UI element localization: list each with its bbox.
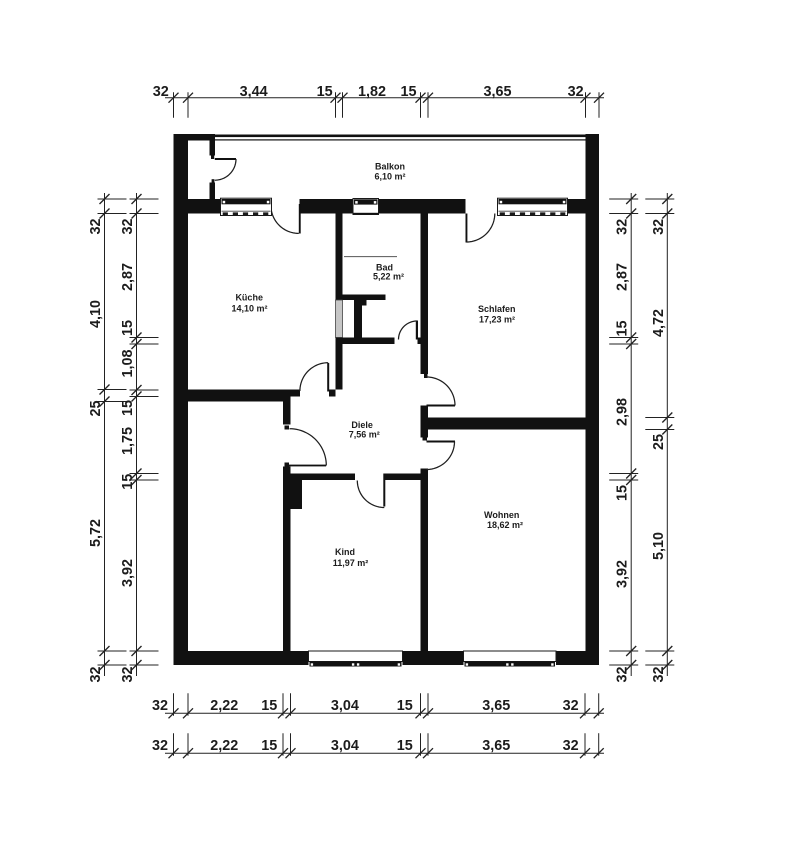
svg-text:4,10: 4,10: [88, 300, 104, 328]
svg-text:18,62 m²: 18,62 m²: [487, 520, 523, 530]
svg-text:32: 32: [615, 666, 631, 682]
svg-text:Wohnen: Wohnen: [484, 510, 519, 520]
svg-text:15: 15: [120, 474, 136, 490]
svg-text:15: 15: [317, 84, 333, 100]
svg-text:15: 15: [615, 320, 631, 336]
svg-text:2,87: 2,87: [120, 263, 136, 291]
svg-text:2,98: 2,98: [615, 398, 631, 426]
svg-text:1,82: 1,82: [358, 84, 386, 100]
svg-text:17,23 m²: 17,23 m²: [479, 314, 515, 324]
svg-text:32: 32: [88, 218, 104, 234]
svg-text:32: 32: [568, 84, 584, 100]
svg-text:32: 32: [615, 219, 631, 235]
svg-text:15: 15: [261, 738, 277, 754]
svg-text:3,92: 3,92: [120, 559, 136, 587]
svg-text:3,44: 3,44: [240, 84, 268, 100]
svg-text:14,10 m²: 14,10 m²: [231, 303, 267, 313]
svg-text:32: 32: [152, 738, 168, 754]
svg-text:Schlafen: Schlafen: [478, 304, 516, 314]
svg-text:Balkon: Balkon: [375, 162, 405, 172]
svg-text:15: 15: [397, 698, 413, 714]
svg-text:32: 32: [152, 698, 168, 714]
svg-text:3,04: 3,04: [331, 738, 359, 754]
svg-text:32: 32: [120, 666, 136, 682]
svg-text:15: 15: [400, 84, 416, 100]
svg-text:15: 15: [397, 738, 413, 754]
svg-text:Küche: Küche: [235, 293, 263, 303]
svg-text:5,22 m²: 5,22 m²: [373, 272, 404, 282]
svg-text:15: 15: [261, 698, 277, 714]
svg-text:3,04: 3,04: [331, 698, 359, 714]
svg-text:32: 32: [651, 666, 667, 682]
svg-text:6,10 m²: 6,10 m²: [374, 171, 405, 181]
svg-text:32: 32: [153, 84, 169, 100]
svg-text:Diele: Diele: [351, 420, 373, 430]
svg-text:Kind: Kind: [335, 547, 355, 557]
svg-text:7,56 m²: 7,56 m²: [349, 430, 380, 440]
svg-text:5,10: 5,10: [651, 532, 667, 560]
svg-text:4,72: 4,72: [651, 309, 667, 337]
svg-text:1,08: 1,08: [120, 349, 136, 377]
svg-text:32: 32: [88, 666, 104, 682]
svg-text:15: 15: [120, 320, 136, 336]
svg-text:25: 25: [651, 434, 667, 450]
svg-text:2,22: 2,22: [210, 738, 238, 754]
svg-text:3,92: 3,92: [615, 560, 631, 588]
svg-text:32: 32: [563, 698, 579, 714]
svg-text:3,65: 3,65: [482, 738, 510, 754]
svg-text:15: 15: [615, 485, 631, 501]
svg-text:1,75: 1,75: [120, 427, 136, 455]
svg-text:32: 32: [563, 738, 579, 754]
svg-text:3,65: 3,65: [482, 698, 510, 714]
svg-text:32: 32: [651, 219, 667, 235]
svg-text:5,72: 5,72: [88, 519, 104, 547]
svg-text:11,97 m²: 11,97 m²: [333, 558, 369, 568]
svg-text:25: 25: [88, 400, 104, 416]
svg-text:2,87: 2,87: [615, 263, 631, 291]
svg-text:32: 32: [120, 218, 136, 234]
svg-text:2,22: 2,22: [210, 698, 238, 714]
svg-text:3,65: 3,65: [483, 84, 511, 100]
svg-text:15: 15: [120, 400, 136, 416]
